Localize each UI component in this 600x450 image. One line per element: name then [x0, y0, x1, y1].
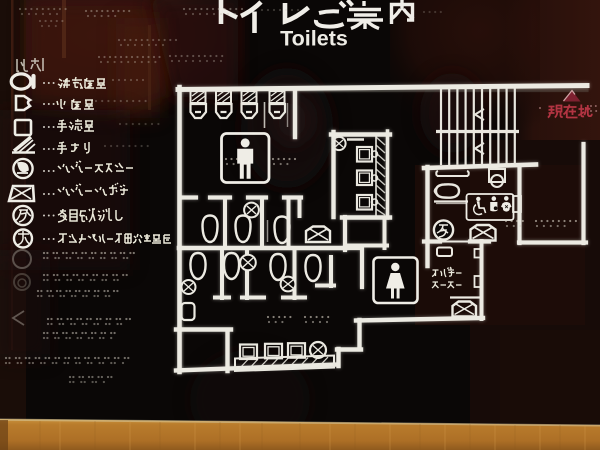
svg-text:Toilets: Toilets	[280, 27, 348, 51]
